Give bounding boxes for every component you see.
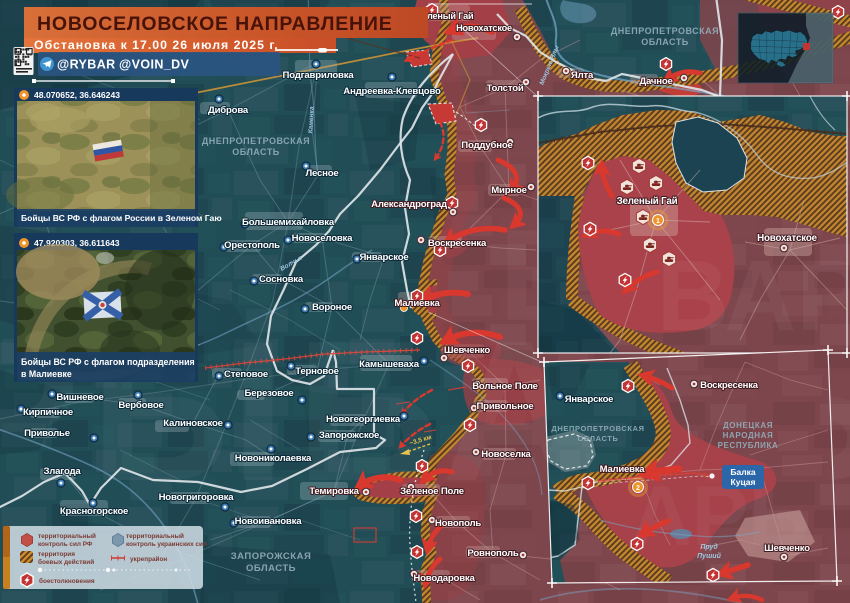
svg-text:Пуший: Пуший <box>697 552 721 560</box>
svg-text:Новоселка: Новоселка <box>481 449 531 460</box>
svg-text:ДНЕПРОПЕТРОВСКАЯ: ДНЕПРОПЕТРОВСКАЯ <box>551 424 644 433</box>
svg-text:@RYBAR: @RYBAR <box>57 58 116 72</box>
svg-text:Новогригоровка: Новогригоровка <box>159 492 235 503</box>
svg-text:ВАР: ВАР <box>657 240 850 352</box>
svg-text:Березовое: Березовое <box>245 388 294 399</box>
svg-text:Шевченко: Шевченко <box>764 543 810 554</box>
svg-text:боевых действий: боевых действий <box>38 558 94 566</box>
svg-text:Злагода: Злагода <box>43 466 81 477</box>
svg-text:Приволье: Приволье <box>24 428 70 439</box>
svg-text:Терновое: Терновое <box>295 366 339 377</box>
svg-text:Новоселовка: Новоселовка <box>292 233 353 244</box>
svg-text:Бойцы ВС РФ с флагом подраздел: Бойцы ВС РФ с флагом подразделения <box>21 357 195 367</box>
svg-text:Новониколаевка: Новониколаевка <box>235 453 312 464</box>
svg-text:Темировка: Темировка <box>309 486 359 497</box>
svg-text:ОБЛАСТЬ: ОБЛАСТЬ <box>246 563 296 574</box>
svg-text:территория: территория <box>38 551 75 558</box>
svg-text:Поддубное: Поддубное <box>461 140 512 151</box>
svg-text:Январское: Январское <box>359 252 408 263</box>
svg-text:территориальный: территориальный <box>126 532 184 540</box>
svg-text:Обстановка к 17.00 26 июля 202: Обстановка к 17.00 26 июля 2025 г. <box>34 38 279 52</box>
svg-text:Камышеваха: Камышеваха <box>359 359 420 370</box>
svg-text:ЗАПОРОЖСКАЯ: ЗАПОРОЖСКАЯ <box>231 551 312 562</box>
svg-text:Куцая: Куцая <box>731 477 756 487</box>
svg-text:Новохатское: Новохатское <box>456 23 512 33</box>
svg-text:Красногорское: Красногорское <box>60 506 128 517</box>
svg-text:ОБЛАСТЬ: ОБЛАСТЬ <box>641 37 689 47</box>
svg-text:Новополь: Новополь <box>435 518 482 529</box>
svg-text:ОБЛАСТЬ: ОБЛАСТЬ <box>578 434 619 443</box>
svg-text:Вербовое: Вербовое <box>118 400 163 411</box>
svg-text:Степовое: Степовое <box>224 369 268 380</box>
svg-text:Январское: Январское <box>565 394 614 405</box>
svg-text:Лесное: Лесное <box>305 168 338 179</box>
svg-text:укрепрайон: укрепрайон <box>130 555 167 563</box>
svg-text:1: 1 <box>656 218 660 225</box>
svg-text:Орестополь: Орестополь <box>224 240 280 251</box>
svg-text:Александроград: Александроград <box>371 199 447 210</box>
svg-text:Диброва: Диброва <box>208 105 249 116</box>
svg-text:Воскресенка: Воскресенка <box>700 380 759 391</box>
svg-text:Зеленый Гай: Зеленый Гай <box>617 196 678 207</box>
svg-text:контроль сил РФ: контроль сил РФ <box>38 541 93 548</box>
svg-text:Андреевка-Клевцово: Андреевка-Клевцово <box>343 86 441 97</box>
svg-text:Балка: Балка <box>730 467 755 477</box>
svg-text:НОВОСЕЛОВСКОЕ НАПРАВЛЕНИЕ: НОВОСЕЛОВСКОЕ НАПРАВЛЕНИЕ <box>37 13 393 35</box>
svg-text:Калиновское: Калиновское <box>163 418 223 429</box>
svg-text:Новодаровка: Новодаровка <box>413 573 475 584</box>
svg-text:Малиевка: Малиевка <box>394 298 440 309</box>
svg-text:Привольное: Привольное <box>476 401 533 412</box>
svg-text:Вороное: Вороное <box>312 302 352 313</box>
svg-text:Большемихайловка: Большемихайловка <box>242 217 335 228</box>
svg-text:Каменка: Каменка <box>307 106 315 134</box>
svg-text:ДОНЕЦКАЯ: ДОНЕЦКАЯ <box>723 421 773 430</box>
svg-text:Новоивановка: Новоивановка <box>235 516 303 527</box>
svg-text:в Малиевке: в Малиевке <box>21 369 72 379</box>
svg-text:Сосновка: Сосновка <box>259 274 304 285</box>
svg-text:Дачное: Дачное <box>639 76 672 87</box>
svg-text:Пруд: Пруд <box>700 543 718 551</box>
svg-text:Подгавриловка: Подгавриловка <box>283 70 355 81</box>
svg-text:НАРОДНАЯ: НАРОДНАЯ <box>723 431 774 440</box>
svg-text:территориальный: территориальный <box>38 532 96 540</box>
svg-text:Толстой: Толстой <box>486 83 523 94</box>
svg-text:Бойцы ВС РФ с флагом России в: Бойцы ВС РФ с флагом России в Зеленом Га… <box>21 213 222 223</box>
svg-text:Малиевка: Малиевка <box>600 464 646 475</box>
svg-text:Кирпичное: Кирпичное <box>23 407 73 418</box>
svg-text:Шевченко: Шевченко <box>444 345 490 356</box>
svg-text:контроль украинских сил: контроль украинских сил <box>126 541 207 548</box>
svg-text:ОБЛАСТЬ: ОБЛАСТЬ <box>232 147 280 157</box>
svg-text:Ялта: Ялта <box>571 70 594 81</box>
svg-text:Воскресенка: Воскресенка <box>428 238 487 249</box>
svg-text:Вольное Поле: Вольное Поле <box>472 381 538 392</box>
svg-text:РЕСПУБЛИКА: РЕСПУБЛИКА <box>718 441 779 450</box>
svg-text:Зеленое Поле: Зеленое Поле <box>400 486 464 497</box>
svg-text:ДНЕПРОПЕТРОВСКАЯ: ДНЕПРОПЕТРОВСКАЯ <box>611 26 719 36</box>
svg-text:Вишневое: Вишневое <box>56 392 103 403</box>
svg-text:2: 2 <box>636 485 640 492</box>
svg-text:ДНЕПРОПЕТРОВСКАЯ: ДНЕПРОПЕТРОВСКАЯ <box>202 136 310 146</box>
svg-text:Запорожское: Запорожское <box>319 430 379 441</box>
svg-text:Новогеоргиевка: Новогеоргиевка <box>326 414 401 425</box>
svg-text:48.070652, 36.646243: 48.070652, 36.646243 <box>34 90 120 100</box>
svg-text:боестолкновения: боестолкновения <box>39 577 95 585</box>
svg-text:Ровнополь: Ровнополь <box>467 548 518 559</box>
svg-text:Новохатское: Новохатское <box>757 233 817 244</box>
svg-text:Мирное: Мирное <box>491 185 527 196</box>
svg-text:@VOIN_DV: @VOIN_DV <box>119 58 190 72</box>
